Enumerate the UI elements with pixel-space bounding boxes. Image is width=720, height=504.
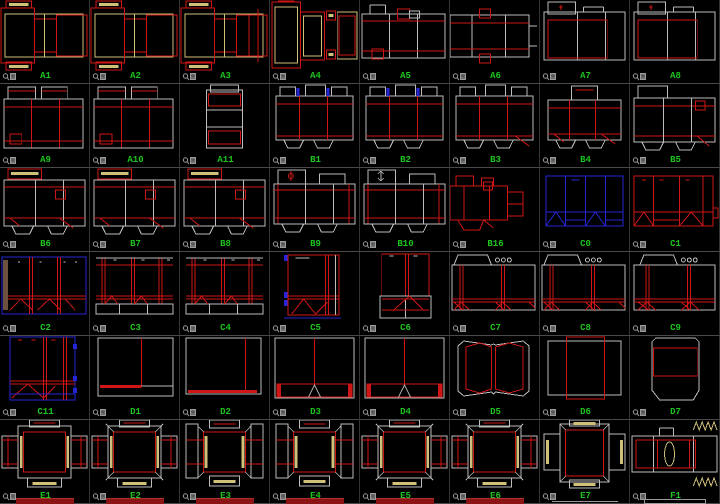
thumbnail-caption-bar: D7 — [630, 406, 719, 418]
preview-icon — [2, 324, 16, 333]
thumbnail-caption-bar: B7 — [90, 238, 179, 250]
template-thumbnail-d7[interactable]: D7 — [630, 336, 720, 420]
template-label: A5 — [376, 71, 435, 82]
template-thumbnail-b9[interactable]: B9 — [270, 168, 360, 252]
preview-icon — [542, 324, 556, 333]
cropped-next-row-fragment — [376, 498, 434, 504]
preview-icon — [542, 240, 556, 249]
preview-icon — [632, 72, 646, 81]
template-label: C2 — [16, 323, 75, 334]
box-template-catalog: A1A2A3A4A5A6A7A8A9A10A11B1B2B3B4B5B6B7B8… — [0, 0, 720, 504]
preview-icon — [452, 408, 466, 417]
template-thumbnail-b4[interactable]: B4 — [540, 84, 630, 168]
template-label: D6 — [556, 407, 615, 418]
thumbnail-caption-bar: A3 — [180, 70, 269, 82]
dieline-drawing — [540, 0, 629, 71]
thumbnail-caption-bar: D6 — [540, 406, 629, 418]
template-thumbnail-a9[interactable]: A9 — [0, 84, 90, 168]
dieline-drawing — [180, 0, 269, 71]
thumbnail-caption-bar: B10 — [360, 238, 449, 250]
preview-icon — [362, 156, 376, 165]
template-label: C4 — [196, 323, 255, 334]
thumbnail-caption-bar: D3 — [270, 406, 359, 418]
thumbnail-caption-bar: C8 — [540, 322, 629, 334]
preview-icon — [542, 492, 556, 501]
thumbnail-caption-bar: C11 — [0, 406, 89, 418]
template-label: A11 — [196, 155, 255, 166]
thumbnail-caption-bar: B9 — [270, 238, 359, 250]
dieline-drawing — [540, 84, 629, 155]
thumbnail-caption-bar: A4 — [270, 70, 359, 82]
dieline-drawing — [450, 420, 539, 491]
dieline-drawing — [0, 252, 89, 323]
template-label: A6 — [466, 71, 525, 82]
dieline-drawing — [270, 420, 359, 491]
template-thumbnail-b10[interactable]: B10 — [360, 168, 450, 252]
dieline-drawing — [360, 252, 449, 323]
preview-icon — [272, 156, 286, 165]
template-thumbnail-f1[interactable]: F1 — [630, 420, 720, 504]
thumbnail-caption-bar: B16 — [450, 238, 539, 250]
preview-icon — [452, 240, 466, 249]
dieline-drawing — [540, 252, 629, 323]
dieline-drawing — [630, 252, 719, 323]
preview-icon — [632, 156, 646, 165]
dieline-drawing — [450, 0, 539, 71]
template-thumbnail-c0[interactable]: C0 — [540, 168, 630, 252]
template-label: B2 — [376, 155, 435, 166]
template-thumbnail-c11[interactable]: C11 — [0, 336, 90, 420]
template-thumbnail-a7[interactable]: A7 — [540, 0, 630, 84]
template-thumbnail-a2[interactable]: A2 — [90, 0, 180, 84]
template-thumbnail-a3[interactable]: A3 — [180, 0, 270, 84]
dieline-drawing — [0, 420, 89, 491]
template-thumbnail-e2[interactable]: E2 — [90, 420, 180, 504]
template-label: B8 — [196, 239, 255, 250]
template-label: A10 — [106, 155, 165, 166]
dieline-drawing — [270, 0, 359, 71]
template-label: B4 — [556, 155, 615, 166]
preview-icon — [362, 492, 376, 501]
thumbnail-caption-bar: C7 — [450, 322, 539, 334]
template-label: B6 — [16, 239, 75, 250]
template-thumbnail-e5[interactable]: E5 — [360, 420, 450, 504]
dieline-drawing — [450, 84, 539, 155]
preview-icon — [452, 324, 466, 333]
template-thumbnail-d4[interactable]: D4 — [360, 336, 450, 420]
template-label: B16 — [466, 239, 525, 250]
thumbnail-caption-bar: D5 — [450, 406, 539, 418]
template-thumbnail-c7[interactable]: C7 — [450, 252, 540, 336]
preview-icon — [92, 408, 106, 417]
template-thumbnail-a4[interactable]: A4 — [270, 0, 360, 84]
preview-icon — [2, 408, 16, 417]
template-thumbnail-a1[interactable]: A1 — [0, 0, 90, 84]
dieline-drawing — [540, 420, 629, 491]
template-label: C8 — [556, 323, 615, 334]
template-thumbnail-d5[interactable]: D5 — [450, 336, 540, 420]
dieline-drawing — [180, 420, 269, 491]
preview-icon — [2, 240, 16, 249]
preview-icon — [452, 492, 466, 501]
preview-icon — [362, 240, 376, 249]
dieline-drawing — [270, 336, 359, 407]
thumbnail-caption-bar: C5 — [270, 322, 359, 334]
template-label: C5 — [286, 323, 345, 334]
thumbnail-caption-bar: A5 — [360, 70, 449, 82]
thumbnail-caption-bar: B3 — [450, 154, 539, 166]
template-thumbnail-d6[interactable]: D6 — [540, 336, 630, 420]
template-thumbnail-b3[interactable]: B3 — [450, 84, 540, 168]
template-label: A1 — [16, 71, 75, 82]
dieline-drawing — [90, 336, 179, 407]
template-thumbnail-c8[interactable]: C8 — [540, 252, 630, 336]
thumbnail-caption-bar: A7 — [540, 70, 629, 82]
thumbnail-caption-bar: C0 — [540, 238, 629, 250]
template-thumbnail-a10[interactable]: A10 — [90, 84, 180, 168]
template-label: C7 — [466, 323, 525, 334]
template-label: A8 — [646, 71, 705, 82]
preview-icon — [92, 156, 106, 165]
thumbnail-caption-bar: A2 — [90, 70, 179, 82]
template-thumbnail-c9[interactable]: C9 — [630, 252, 720, 336]
thumbnail-caption-bar: A8 — [630, 70, 719, 82]
thumbnail-caption-bar: C3 — [90, 322, 179, 334]
preview-icon — [452, 156, 466, 165]
cropped-next-row-fragment — [106, 498, 164, 504]
template-thumbnail-e4[interactable]: E4 — [270, 420, 360, 504]
preview-icon — [632, 324, 646, 333]
template-label: B5 — [646, 155, 705, 166]
dieline-drawing — [450, 336, 539, 407]
template-label: D2 — [196, 407, 255, 418]
dieline-drawing — [270, 252, 359, 323]
template-label: A4 — [286, 71, 345, 82]
thumbnail-caption-bar: B8 — [180, 238, 269, 250]
dieline-drawing — [180, 336, 269, 407]
preview-icon — [92, 324, 106, 333]
cropped-next-row-fragment — [16, 498, 74, 504]
thumbnail-caption-bar: C6 — [360, 322, 449, 334]
dieline-drawing — [0, 168, 89, 239]
template-label: C0 — [556, 239, 615, 250]
template-label: D7 — [646, 407, 705, 418]
dieline-drawing — [630, 84, 719, 155]
template-thumbnail-b7[interactable]: B7 — [90, 168, 180, 252]
thumbnail-caption-bar: B4 — [540, 154, 629, 166]
dieline-drawing — [450, 168, 539, 239]
dieline-drawing — [630, 168, 719, 239]
cropped-next-row-fragment — [196, 498, 254, 504]
template-grid: A1A2A3A4A5A6A7A8A9A10A11B1B2B3B4B5B6B7B8… — [0, 0, 720, 504]
dieline-drawing — [180, 252, 269, 323]
template-label: E7 — [556, 491, 615, 502]
thumbnail-caption-bar: C2 — [0, 322, 89, 334]
template-thumbnail-d3[interactable]: D3 — [270, 336, 360, 420]
preview-icon — [632, 240, 646, 249]
template-label: B9 — [286, 239, 345, 250]
dieline-drawing — [0, 336, 89, 407]
template-thumbnail-a5[interactable]: A5 — [360, 0, 450, 84]
template-thumbnail-d1[interactable]: D1 — [90, 336, 180, 420]
preview-icon — [272, 408, 286, 417]
template-label: A9 — [16, 155, 75, 166]
dieline-drawing — [270, 84, 359, 155]
thumbnail-caption-bar: B5 — [630, 154, 719, 166]
thumbnail-caption-bar: A1 — [0, 70, 89, 82]
template-thumbnail-e7[interactable]: E7 — [540, 420, 630, 504]
template-label: A2 — [106, 71, 165, 82]
template-thumbnail-a11[interactable]: A11 — [180, 84, 270, 168]
template-label: D5 — [466, 407, 525, 418]
thumbnail-caption-bar: A11 — [180, 154, 269, 166]
preview-icon — [362, 72, 376, 81]
thumbnail-caption-bar: A6 — [450, 70, 539, 82]
thumbnail-caption-bar: A10 — [90, 154, 179, 166]
template-thumbnail-c5[interactable]: C5 — [270, 252, 360, 336]
template-thumbnail-b16[interactable]: B16 — [450, 168, 540, 252]
template-label: B3 — [466, 155, 525, 166]
dieline-drawing — [360, 168, 449, 239]
template-thumbnail-e3[interactable]: E3 — [180, 420, 270, 504]
preview-icon — [182, 408, 196, 417]
dieline-drawing — [360, 0, 449, 71]
cropped-next-row-fragment — [552, 501, 618, 502]
preview-icon — [92, 240, 106, 249]
template-label: C9 — [646, 323, 705, 334]
template-thumbnail-e1[interactable]: E1 — [0, 420, 90, 504]
dieline-drawing — [90, 252, 179, 323]
cropped-next-row-fragment — [644, 499, 706, 504]
preview-icon — [272, 72, 286, 81]
preview-icon — [182, 492, 196, 501]
preview-icon — [542, 156, 556, 165]
preview-icon — [182, 156, 196, 165]
template-thumbnail-b5[interactable]: B5 — [630, 84, 720, 168]
preview-icon — [632, 408, 646, 417]
thumbnail-caption-bar: B6 — [0, 238, 89, 250]
preview-icon — [2, 72, 16, 81]
template-thumbnail-a8[interactable]: A8 — [630, 0, 720, 84]
dieline-drawing — [360, 420, 449, 491]
template-thumbnail-b6[interactable]: B6 — [0, 168, 90, 252]
dieline-drawing — [450, 252, 539, 323]
template-thumbnail-e6[interactable]: E6 — [450, 420, 540, 504]
dieline-drawing — [0, 84, 89, 155]
template-thumbnail-c2[interactable]: C2 — [0, 252, 90, 336]
dieline-drawing — [540, 336, 629, 407]
dieline-drawing — [90, 168, 179, 239]
dieline-drawing — [0, 0, 89, 71]
template-label: B10 — [376, 239, 435, 250]
preview-icon — [362, 408, 376, 417]
preview-icon — [362, 324, 376, 333]
template-thumbnail-d2[interactable]: D2 — [180, 336, 270, 420]
template-thumbnail-a6[interactable]: A6 — [450, 0, 540, 84]
thumbnail-caption-bar: C1 — [630, 238, 719, 250]
preview-icon — [452, 72, 466, 81]
dieline-drawing — [180, 168, 269, 239]
dieline-drawing — [90, 0, 179, 71]
dieline-drawing — [90, 84, 179, 155]
template-thumbnail-b1[interactable]: B1 — [270, 84, 360, 168]
dieline-drawing — [540, 168, 629, 239]
template-label: C11 — [16, 407, 75, 418]
template-label: D1 — [106, 407, 165, 418]
template-thumbnail-c3[interactable]: C3 — [90, 252, 180, 336]
dieline-drawing — [90, 420, 179, 491]
preview-icon — [92, 492, 106, 501]
dieline-drawing — [630, 420, 719, 491]
preview-icon — [542, 72, 556, 81]
thumbnail-caption-bar: A9 — [0, 154, 89, 166]
template-label: C1 — [646, 239, 705, 250]
template-thumbnail-c4[interactable]: C4 — [180, 252, 270, 336]
template-label: C6 — [376, 323, 435, 334]
thumbnail-caption-bar: D2 — [180, 406, 269, 418]
dieline-drawing — [360, 84, 449, 155]
preview-icon — [182, 72, 196, 81]
thumbnail-caption-bar: D1 — [90, 406, 179, 418]
cropped-next-row-fragment — [286, 498, 344, 504]
template-thumbnail-c6[interactable]: C6 — [360, 252, 450, 336]
template-label: D3 — [286, 407, 345, 418]
preview-icon — [182, 324, 196, 333]
thumbnail-caption-bar: B1 — [270, 154, 359, 166]
template-label: B7 — [106, 239, 165, 250]
preview-icon — [2, 492, 16, 501]
cropped-next-row-fragment — [466, 498, 524, 504]
dieline-drawing — [180, 84, 269, 155]
dieline-drawing — [270, 168, 359, 239]
dieline-drawing — [360, 336, 449, 407]
dieline-drawing — [630, 0, 719, 71]
preview-icon — [272, 240, 286, 249]
thumbnail-caption-bar: B2 — [360, 154, 449, 166]
preview-icon — [92, 72, 106, 81]
thumbnail-caption-bar: C9 — [630, 322, 719, 334]
preview-icon — [542, 408, 556, 417]
thumbnail-caption-bar: C4 — [180, 322, 269, 334]
template-label: A7 — [556, 71, 615, 82]
template-label: B1 — [286, 155, 345, 166]
template-thumbnail-b8[interactable]: B8 — [180, 168, 270, 252]
thumbnail-caption-bar: D4 — [360, 406, 449, 418]
preview-icon — [272, 324, 286, 333]
template-label: D4 — [376, 407, 435, 418]
template-thumbnail-b2[interactable]: B2 — [360, 84, 450, 168]
template-thumbnail-c1[interactable]: C1 — [630, 168, 720, 252]
template-label: A3 — [196, 71, 255, 82]
preview-icon — [182, 240, 196, 249]
preview-icon — [2, 156, 16, 165]
preview-icon — [272, 492, 286, 501]
template-label: C3 — [106, 323, 165, 334]
dieline-drawing — [630, 336, 719, 407]
